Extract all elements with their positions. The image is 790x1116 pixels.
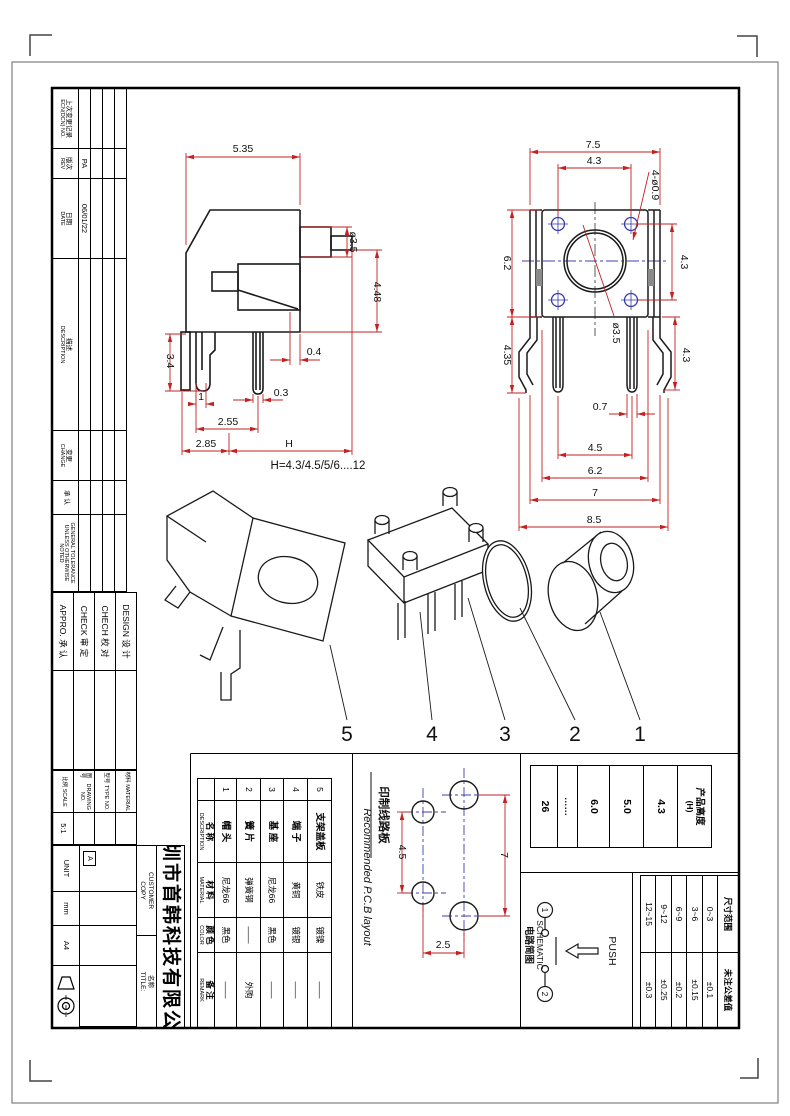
info-type-value <box>95 813 115 844</box>
part-remark: —— <box>215 953 236 1027</box>
schematic-label-zh: 电路简图 <box>523 926 535 964</box>
side-height-note: H=4.3/4.5/5/6....12 <box>271 460 366 472</box>
paper-size: A4 <box>53 926 79 966</box>
info-scale-value: 5:1 <box>53 813 73 844</box>
tolerance-value: ±0.15 <box>687 953 701 1027</box>
side-view: 5.35 ø3.5 4.48 0.4 3.4 0.3 1 2.55 2.85 H… <box>164 143 383 472</box>
info-drawingno-zh: 图号 <box>78 771 90 780</box>
pcb-label-en: Recommended P.C.B layout <box>361 808 373 946</box>
revision-entry-date: 06/01/22 <box>78 179 90 258</box>
signoff-check-zh: 审 定 <box>80 638 89 657</box>
info-material-zh: 材料 <box>123 772 129 783</box>
info-material-value <box>116 813 136 844</box>
revision-table: 上次变更记录 ECN(DCN) NO. PA 版次 REV 06/01/22 日… <box>52 88 127 592</box>
revision-col-ecn-en: ECN(DCN) NO. <box>59 99 65 138</box>
parts-header-material-zh: 材 料 <box>204 880 213 899</box>
part-number-4: 4 <box>426 723 438 746</box>
schematic-push-label: PUSH <box>606 936 618 965</box>
customer-copy-line2: COPY <box>139 881 146 899</box>
part-name: 簧 片 <box>237 801 260 863</box>
unit-label: UNIT <box>53 846 79 892</box>
revision-col-change-en: CHANGE <box>59 444 65 468</box>
side-dim-5-35: 5.35 <box>233 143 254 155</box>
height-value: 5.0 <box>610 766 643 847</box>
front-dim-7: 7 <box>592 487 598 499</box>
front-dim-4-3-top: 4.3 <box>587 155 602 167</box>
pcb-layout: 4.5 7 2.5 印制线路板 Recommended P.C.B layout <box>361 768 510 958</box>
info-drawingno-value <box>74 813 94 844</box>
signoff-appro-en: APPRO. <box>59 605 68 637</box>
unit-value: mm <box>53 892 79 926</box>
signoff-chech-zh: 校 对 <box>101 638 110 657</box>
signoff-appro-signature <box>53 671 73 769</box>
tolerance-range: 0~3 <box>703 876 717 953</box>
front-dim-0-7: 0.7 <box>593 401 608 413</box>
height-value: 26 <box>531 766 557 847</box>
revision-col-ecn-zh: 上次变更记录 <box>65 99 72 138</box>
info-type-zh: 型号 <box>102 772 108 783</box>
part-material: 尼龙66 <box>261 863 283 918</box>
exploded-view: 5 4 3 2 1 <box>165 488 646 747</box>
part-no: 4 <box>284 779 307 801</box>
parts-table: 5 支架盖板 铁皮 镀镍 —— 4 端 子 黄铜 镀银 —— 3 基 座 尼龙6… <box>197 778 332 1028</box>
tolerance-range: 9~12 <box>656 876 670 953</box>
tolerance-value: ±0.2 <box>672 953 686 1027</box>
side-dim-4-48: 4.48 <box>371 282 383 303</box>
part-remark: —— <box>308 953 331 1027</box>
tolerance-value: ±0.3 <box>641 953 655 1027</box>
revision-col-rev-en: REV <box>59 158 65 169</box>
height-header-zh: 产品高度 <box>694 787 704 825</box>
part-number-3: 3 <box>499 723 511 746</box>
side-dim-1: 1 <box>198 391 204 403</box>
signoff-design-signature <box>116 671 136 769</box>
signoff-table: DESIGN 设 计 CHECH 校 对 CHECK 审 定 APPRO. 承 … <box>52 592 137 770</box>
customer-copy-line1: CUSTOMER <box>147 872 154 909</box>
side-dim-0-4: 0.4 <box>307 346 322 358</box>
part-material: 铁皮 <box>308 863 331 918</box>
tolerance-value: ±0.1 <box>703 953 717 1027</box>
parts-header-remark-en: REMARK <box>198 978 204 1002</box>
front-dim-4-35: 4.35 <box>501 345 513 366</box>
front-dim-4-3-right-lower: 4.3 <box>680 348 692 363</box>
tolerance-header-range: 尺寸范围 <box>718 876 738 953</box>
corner-hole-icons <box>548 214 641 310</box>
part-no: 5 <box>308 779 331 801</box>
schematic-label-en: SCHEMATIC <box>535 920 545 969</box>
info-type-en: TYPE NO. <box>102 785 108 811</box>
info-material-en: MATERIAL <box>123 784 129 811</box>
info-drawingno-en: DRAWING NO. <box>78 781 90 812</box>
signoff-appro-zh: 承 认 <box>59 639 68 658</box>
third-angle-projection-icon <box>56 975 76 1019</box>
side-dim-2-85: 2.85 <box>196 438 217 450</box>
pcb-dim-2-5: 2.5 <box>436 939 451 951</box>
parts-header-name-en: DESCRIPTION <box>198 813 204 851</box>
product-height-table: 产品高度 (H) 4.3 5.0 6.0 …… 26 <box>530 765 712 848</box>
pcb-dim-4-5: 4.5 <box>396 845 408 860</box>
part-remark: —— <box>261 953 283 1027</box>
revision-col-desc-en: DESCRIPTION <box>59 326 65 364</box>
part-material: 尼龙66 <box>215 863 236 918</box>
drawing-sheet-page: 5.35 ø3.5 4.48 0.4 3.4 0.3 1 2.55 2.85 H… <box>0 0 790 1116</box>
tolerance-range: 3~6 <box>687 876 701 953</box>
schematic: 1 2 PUSH 电路简图 SCHEMATIC <box>523 903 618 1002</box>
front-dim-4-3-right-upper: 4.3 <box>678 255 690 270</box>
part-remark: —— <box>284 953 307 1027</box>
front-view: 7.5 4.3 4-ø0.9 6.2 4.3 4.35 ø3.5 4.3 0.7… <box>501 139 692 531</box>
revision-mark-box: A <box>83 851 96 866</box>
front-dim-4-dia-0-9: 4-ø0.9 <box>649 170 661 201</box>
part-name: 基 座 <box>261 801 283 863</box>
revision-col-approve: 承 认 <box>53 481 78 514</box>
part-color: 镀银 <box>284 918 307 953</box>
part-material: 黄铜 <box>284 863 307 918</box>
height-value: 4.3 <box>644 766 677 847</box>
height-value: 6.0 <box>578 766 609 847</box>
tolerance-value: ±0.25 <box>656 953 670 1027</box>
front-dim-dia-3-5: ø3.5 <box>610 322 622 343</box>
part-color: 镀镍 <box>308 918 331 953</box>
part-number-5: 5 <box>341 723 353 746</box>
pcb-label-zh: 印制线路板 <box>377 786 391 844</box>
part-name: 帽 头 <box>215 801 236 863</box>
parts-header-color-en: COLOR <box>198 925 204 945</box>
parts-header-material-en: MATERIAL <box>198 876 204 903</box>
part-number-2: 2 <box>569 723 581 746</box>
part-no: 2 <box>237 779 260 801</box>
revision-col-rev-zh: 版次 <box>65 157 72 170</box>
right-tab <box>648 269 654 286</box>
signoff-design-zh: 设 计 <box>122 639 131 658</box>
side-dim-0-3: 0.3 <box>274 387 289 399</box>
parts-header-remark-zh: 备 注 <box>204 980 213 999</box>
part-no: 3 <box>261 779 283 801</box>
revision-col-desc-zh: 描述 <box>65 338 72 351</box>
part-name: 支架盖板 <box>308 801 331 863</box>
revision-entry-rev: PA <box>78 149 90 178</box>
front-dim-8-5: 8.5 <box>587 514 602 526</box>
side-dim-dia-3-5: ø3.5 <box>347 231 359 252</box>
parts-header-color-zh: 颜 色 <box>204 925 213 944</box>
tolerance-range: 6~9 <box>672 876 686 953</box>
schematic-terminal-2: 2 <box>540 992 550 997</box>
info-table: 材料 MATERIAL 型号 TYPE NO. 图号 DRAWING NO. 比… <box>52 770 137 845</box>
part-name: 端 子 <box>284 801 307 863</box>
pcb-dim-7: 7 <box>498 852 510 858</box>
info-scale-zh: 比例 <box>60 776 66 787</box>
title-label-en: TITLE: <box>139 972 146 992</box>
side-dim-2-55: 2.55 <box>218 416 239 428</box>
part-material: 弹簧钢 <box>237 863 260 918</box>
signoff-check-signature <box>74 671 94 769</box>
part-color: 黑色 <box>215 918 236 953</box>
side-dim-H: H <box>285 438 293 450</box>
signoff-chech-en: CHECH <box>101 606 110 636</box>
parts-header-name-zh: 名 称 <box>204 822 213 841</box>
tolerance-table: 尺寸范围 未注公差值 0~3 ±0.1 3~6 ±0.15 6~9 ±0.2 9… <box>640 875 739 1028</box>
front-dim-7-5: 7.5 <box>586 139 601 151</box>
height-value: …… <box>558 766 577 847</box>
revision-col-date-en: DATE <box>59 211 65 225</box>
tolerance-header-value: 未注公差值 <box>718 953 738 1027</box>
part-remark: 外购 <box>237 953 260 1027</box>
info-scale-en: SCALE <box>60 789 66 807</box>
signoff-check-en: CHECK <box>80 606 89 636</box>
general-tolerance-note: GENERAL TOLERANCE UNLESS OTHERWISE NOTED <box>53 515 78 591</box>
part-number-1: 1 <box>634 723 646 746</box>
schematic-terminal-1: 1 <box>540 908 550 913</box>
height-header-sub: (H) <box>685 801 694 813</box>
title-block: 深圳市首韩科技有限公司 CUSTOMER COPY 名称 TITLE: A UN… <box>52 845 185 1028</box>
revision-col-date-zh: 日期 <box>65 212 72 225</box>
front-dim-6-2-left: 6.2 <box>501 256 513 271</box>
part-color: 黑色 <box>261 918 283 953</box>
front-dim-6-2-bottom: 6.2 <box>588 465 603 477</box>
front-dim-4-5: 4.5 <box>588 442 603 454</box>
part-color: —— <box>237 918 260 953</box>
side-dim-3-4: 3.4 <box>164 354 176 369</box>
signoff-chech-signature <box>95 671 115 769</box>
company-name: 深圳市首韩科技有限公司 <box>161 846 181 1027</box>
left-tab <box>536 269 542 286</box>
revision-col-change-zh: 变更 <box>65 449 72 462</box>
signoff-design-en: DESIGN <box>122 604 131 637</box>
tolerance-range: 12~15 <box>641 876 655 953</box>
part-no: 1 <box>215 779 236 801</box>
projection-symbol-cell <box>53 966 79 1027</box>
title-label-zh: 名称 <box>147 975 154 988</box>
